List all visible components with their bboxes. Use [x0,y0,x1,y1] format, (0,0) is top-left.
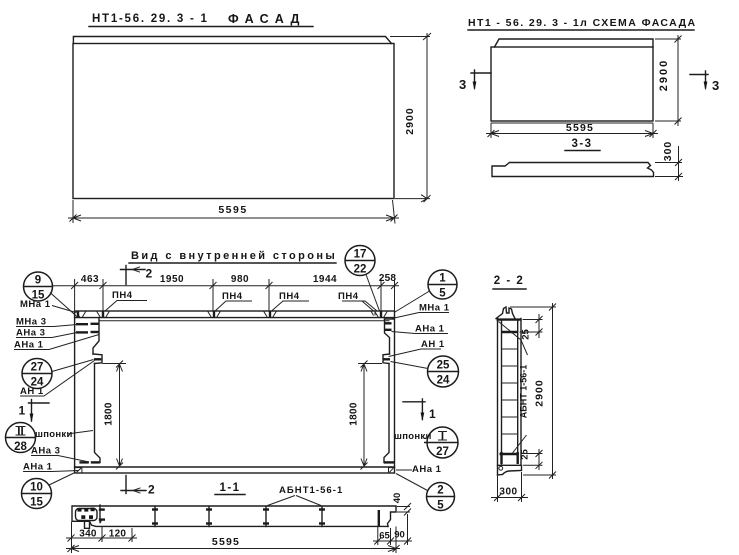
svg-text:МНа 1: МНа 1 [419,303,450,314]
svg-text:МНа 3: МНа 3 [16,317,46,328]
svg-text:1-1: 1-1 [219,482,240,494]
svg-text:АНа 1: АНа 1 [23,462,53,473]
svg-text:5: 5 [439,288,446,300]
svg-text:980: 980 [231,274,249,285]
svg-text:17: 17 [354,249,367,261]
svg-text:АНа 1: АНа 1 [14,340,44,351]
svg-text:.: . [424,431,427,442]
svg-text:120: 120 [109,529,127,540]
svg-text:АНа 3: АНа 3 [31,446,60,457]
svg-text:3-3: 3-3 [571,138,592,150]
svg-text:АБНТ1-56-1: АБНТ1-56-1 [279,485,343,496]
svg-text:28: 28 [14,441,27,453]
svg-text:3: 3 [712,78,719,93]
svg-text:АН 1: АН 1 [20,386,44,397]
svg-text:АНа 1: АНа 1 [412,464,442,475]
svg-text:3: 3 [459,77,466,92]
svg-text:27: 27 [31,362,44,374]
svg-text:90: 90 [394,530,405,541]
svg-text:1800: 1800 [104,402,115,426]
svg-text:II: II [17,426,23,438]
svg-text:ПН4: ПН4 [112,290,133,301]
svg-text:25: 25 [521,329,532,340]
svg-text:25: 25 [437,360,450,372]
svg-text:15: 15 [30,497,43,509]
svg-text:1: 1 [19,404,26,418]
svg-text:2900: 2900 [534,379,546,406]
svg-text:АНа 3: АНа 3 [16,328,45,339]
svg-text:I: I [441,431,444,443]
svg-text:2: 2 [146,267,153,281]
svg-text:1: 1 [429,407,436,421]
svg-text:2900: 2900 [404,107,416,134]
svg-text:МНа 1: МНа 1 [20,299,51,310]
svg-text:1800: 1800 [349,402,360,426]
svg-text:300: 300 [499,487,517,498]
svg-text:ФАСАД: ФАСАД [228,12,306,26]
svg-text:65: 65 [379,531,390,542]
svg-text:25: 25 [520,449,531,460]
svg-text:24: 24 [437,375,450,387]
svg-text:5595: 5595 [212,536,240,548]
svg-text:АНа 1: АНа 1 [415,324,445,335]
svg-text:НТ1-56. 29. 3 - 1: НТ1-56. 29. 3 - 1 [92,13,209,25]
svg-text:27: 27 [436,446,449,458]
svg-text:1944: 1944 [313,274,337,285]
svg-text:463: 463 [81,274,99,285]
svg-text:22: 22 [354,264,367,276]
svg-text:2900: 2900 [658,59,670,91]
svg-text:ПН4: ПН4 [222,291,243,302]
svg-text:ПН4: ПН4 [338,291,359,302]
svg-text:1950: 1950 [160,274,184,285]
svg-text:2: 2 [148,483,155,497]
svg-text:2: 2 [437,485,443,497]
svg-text:258: 258 [379,273,397,284]
svg-text:5595: 5595 [566,122,594,134]
svg-text:340: 340 [79,529,97,540]
svg-text:АБНТ 1-56-1: АБНТ 1-56-1 [519,365,529,418]
svg-text:1: 1 [439,273,446,285]
svg-text:ПН4: ПН4 [279,291,300,302]
svg-text:300: 300 [662,141,674,162]
svg-text:9: 9 [35,275,41,287]
svg-text:АН 1: АН 1 [421,339,445,350]
svg-text:5: 5 [437,500,444,512]
svg-text:10: 10 [30,482,43,494]
svg-text:2 - 2: 2 - 2 [494,275,525,287]
svg-text:НТ1 - 56. 29. 3 - 1л СХЕМА ФАС: НТ1 - 56. 29. 3 - 1л СХЕМА ФАСАДА [468,17,696,29]
svg-text:5595: 5595 [218,204,247,216]
svg-text:Вид с внутренней стороны: Вид с внутренней стороны [131,250,337,262]
svg-text:шпонки: шпонки [35,429,73,440]
svg-text:40: 40 [392,493,403,504]
